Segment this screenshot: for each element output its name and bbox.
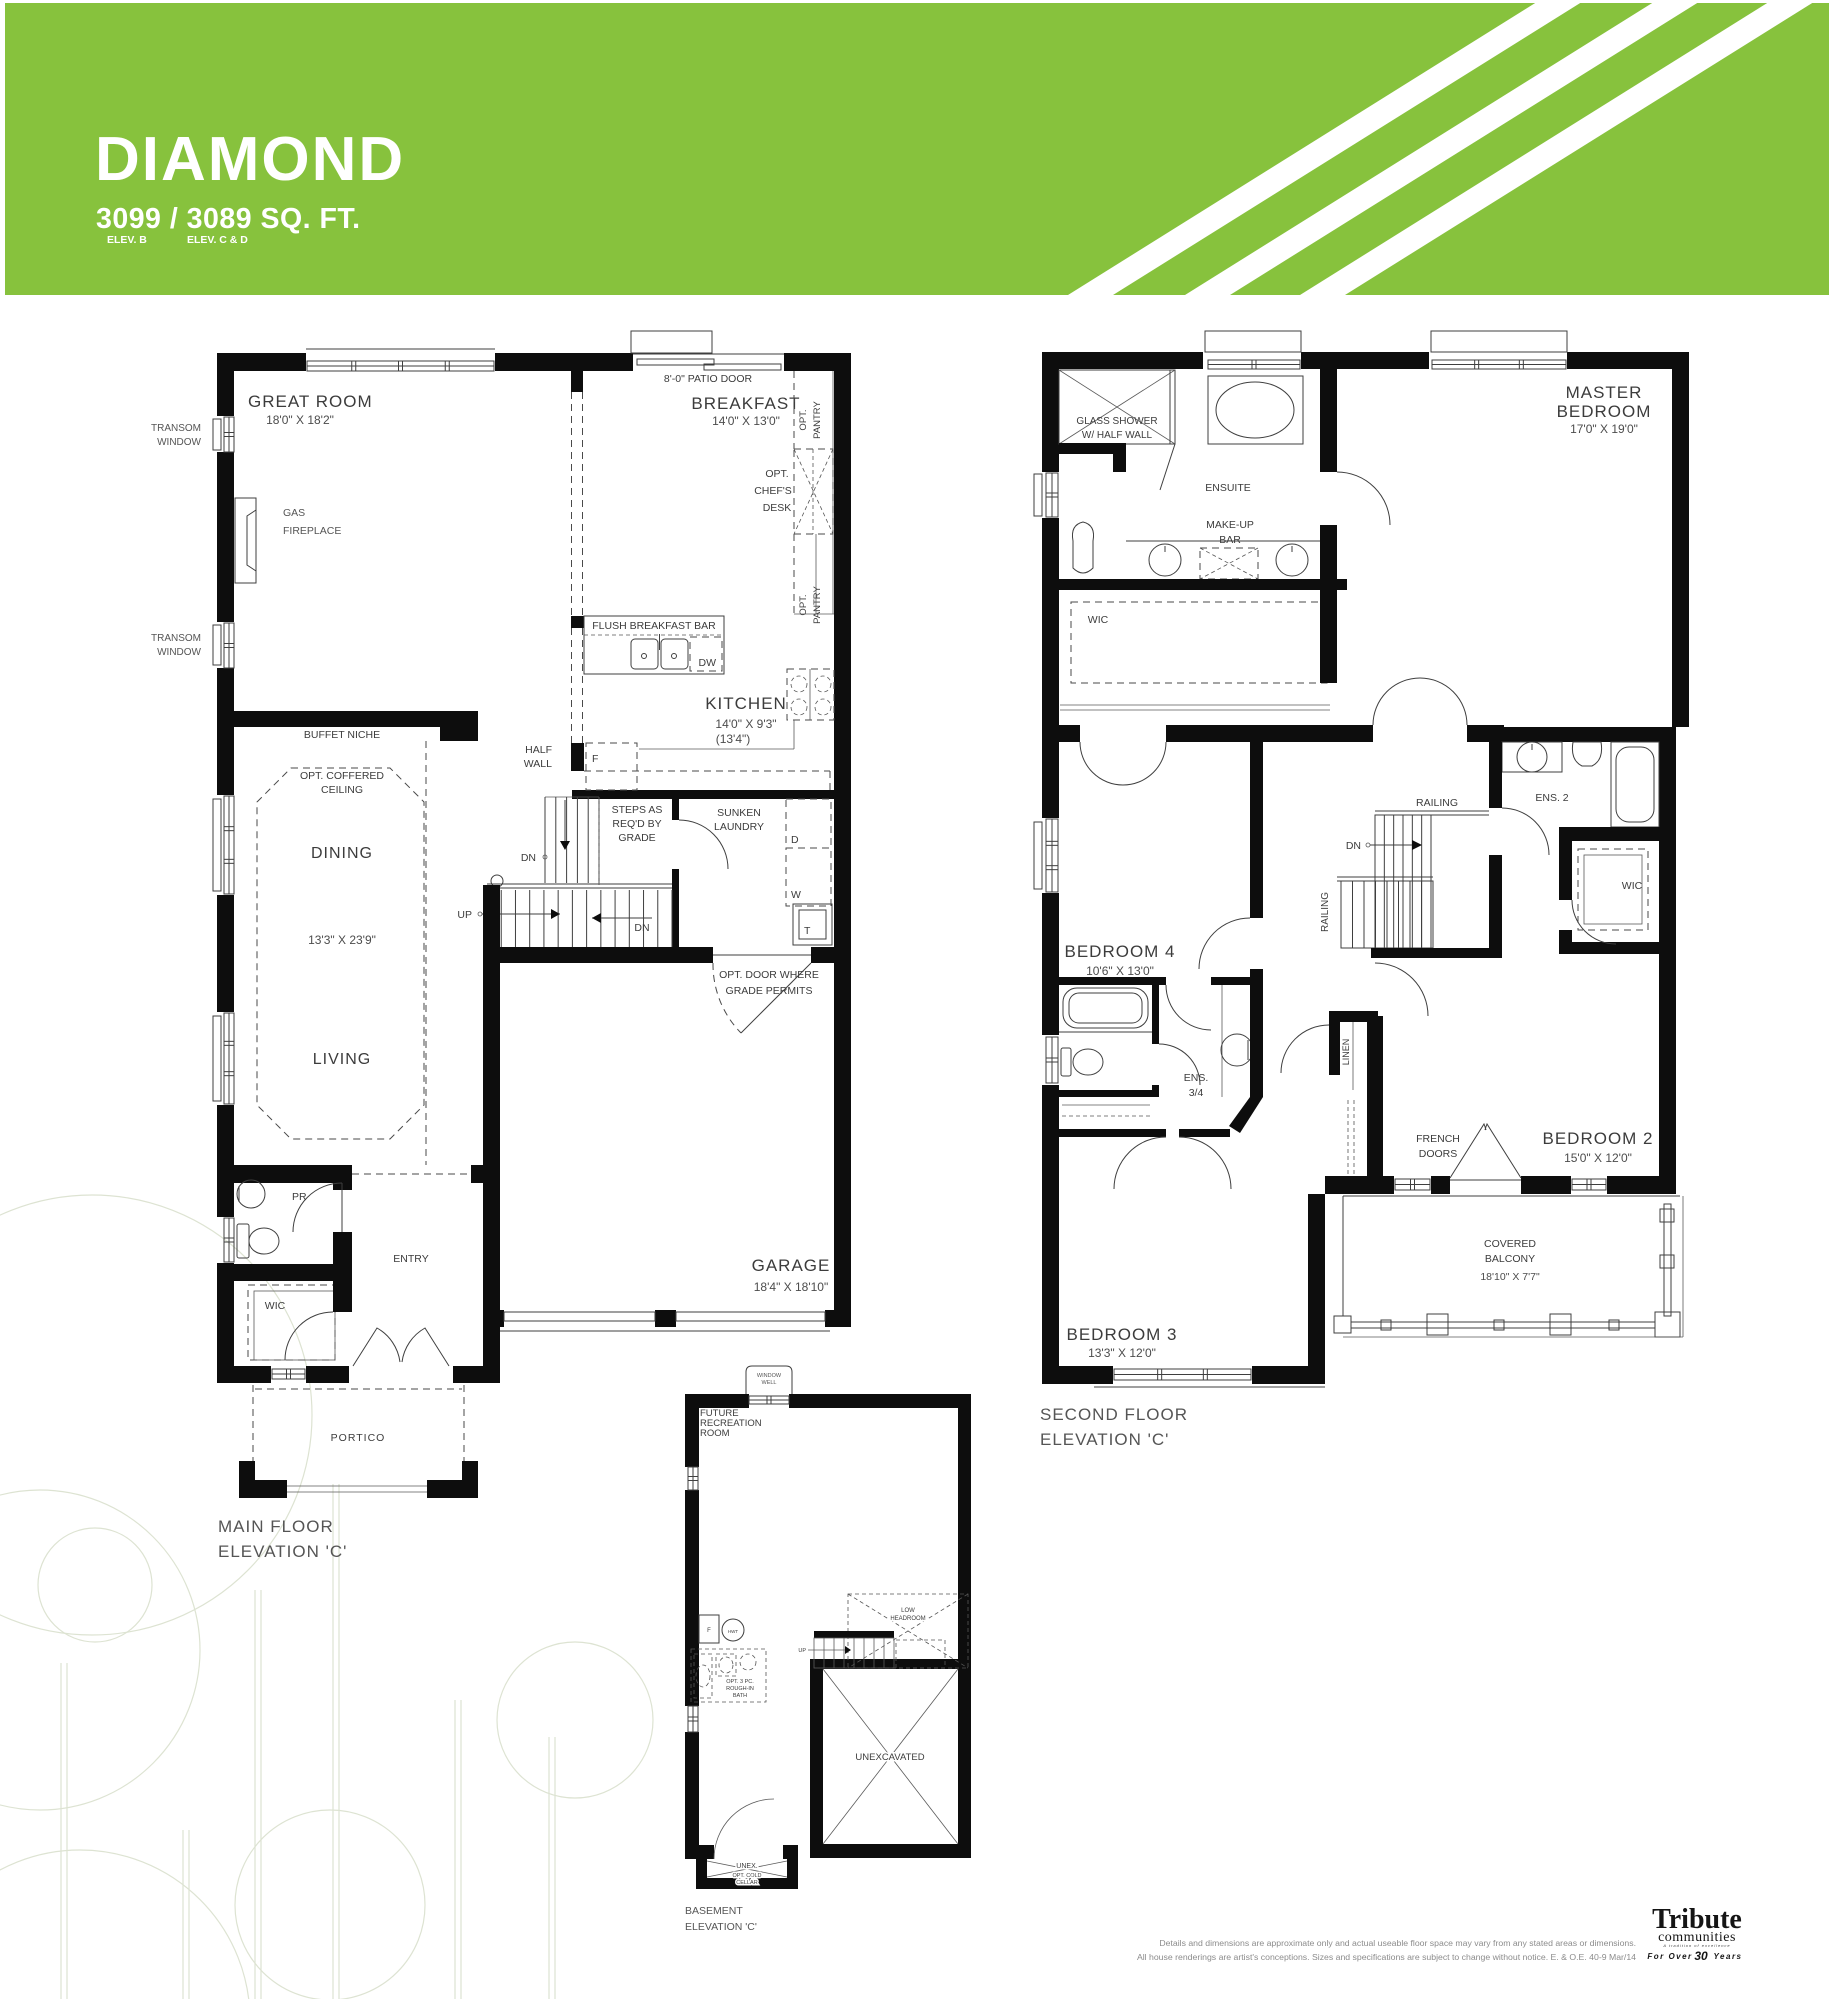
svg-text:HWT: HWT <box>728 1629 738 1634</box>
svg-text:GARAGE: GARAGE <box>752 1256 831 1275</box>
svg-text:GLASS SHOWER: GLASS SHOWER <box>1076 416 1157 427</box>
svg-text:BREAKFAST: BREAKFAST <box>691 394 800 413</box>
svg-text:ELEV. B: ELEV. B <box>107 234 147 246</box>
svg-text:WIC: WIC <box>265 1300 286 1312</box>
svg-text:3/4: 3/4 <box>1189 1087 1204 1099</box>
svg-text:WINDOW: WINDOW <box>757 1373 782 1379</box>
svg-text:For Over: For Over <box>1647 1952 1692 1961</box>
svg-text:3099 / 3089 SQ. FT.: 3099 / 3089 SQ. FT. <box>96 203 361 235</box>
svg-text:D: D <box>791 834 799 846</box>
svg-text:18'0" X 18'2": 18'0" X 18'2" <box>266 413 334 427</box>
svg-text:MASTER: MASTER <box>1566 383 1643 402</box>
svg-text:DN: DN <box>521 852 536 864</box>
svg-text:18'4" X 18'10": 18'4" X 18'10" <box>754 1280 829 1294</box>
svg-text:WIC: WIC <box>1622 880 1643 892</box>
svg-text:SUNKEN: SUNKEN <box>717 807 761 819</box>
svg-text:PR: PR <box>292 1191 307 1203</box>
svg-text:WIC: WIC <box>1088 614 1109 626</box>
svg-text:CEILING: CEILING <box>321 784 363 796</box>
svg-text:CHEF'S: CHEF'S <box>754 485 792 497</box>
svg-text:ENS.: ENS. <box>1184 1072 1209 1084</box>
svg-text:Years: Years <box>1714 1952 1743 1961</box>
svg-text:OPT.: OPT. <box>798 594 809 615</box>
svg-text:FLUSH BREAKFAST BAR: FLUSH BREAKFAST BAR <box>592 620 716 632</box>
svg-text:LIVING: LIVING <box>313 1051 371 1068</box>
svg-text:DIAMOND: DIAMOND <box>95 125 405 194</box>
svg-text:FRENCH: FRENCH <box>1416 1133 1460 1145</box>
svg-text:UP: UP <box>798 1648 806 1654</box>
svg-text:18'10" X 7'7": 18'10" X 7'7" <box>1480 1271 1540 1283</box>
svg-text:OPT. DOOR WHERE: OPT. DOOR WHERE <box>719 969 819 981</box>
svg-text:BATH: BATH <box>733 1693 747 1699</box>
svg-text:ENSUITE: ENSUITE <box>1205 482 1251 494</box>
svg-text:DINING: DINING <box>311 845 373 862</box>
svg-text:DN: DN <box>634 922 649 934</box>
svg-text:14'0" X 9'3": 14'0" X 9'3" <box>715 717 776 731</box>
svg-text:LOW: LOW <box>901 1608 915 1614</box>
svg-text:LINEN: LINEN <box>1341 1039 1351 1066</box>
svg-text:T: T <box>804 925 811 937</box>
svg-text:CELLAR: CELLAR <box>736 1880 757 1886</box>
svg-text:F: F <box>592 753 598 765</box>
svg-text:OPT.: OPT. <box>765 468 788 480</box>
svg-text:All house renderings are artis: All house renderings are artist's concep… <box>1137 1952 1636 1962</box>
svg-text:ELEV. C & D: ELEV. C & D <box>187 234 248 246</box>
svg-text:DESK: DESK <box>763 502 792 514</box>
svg-text:PANTRY: PANTRY <box>812 586 823 624</box>
svg-text:UP: UP <box>457 909 472 921</box>
svg-text:DW: DW <box>699 657 717 669</box>
svg-text:BEDROOM 2: BEDROOM 2 <box>1542 1129 1653 1148</box>
svg-text:OPT. 3 PC.: OPT. 3 PC. <box>726 1679 754 1685</box>
svg-text:ELEVATION 'C': ELEVATION 'C' <box>218 1542 347 1561</box>
svg-text:GRADE: GRADE <box>618 832 655 844</box>
svg-text:ELEVATION 'C': ELEVATION 'C' <box>685 1921 757 1933</box>
svg-text:OPT. COLD: OPT. COLD <box>732 1873 761 1879</box>
svg-text:BAR: BAR <box>1219 534 1241 546</box>
svg-text:13'3" X 23'9": 13'3" X 23'9" <box>308 933 376 947</box>
svg-text:WINDOW: WINDOW <box>157 437 201 448</box>
svg-text:14'0" X 13'0": 14'0" X 13'0" <box>712 414 780 428</box>
svg-text:BASEMENT: BASEMENT <box>685 1905 743 1917</box>
svg-text:OPT.: OPT. <box>798 409 809 430</box>
svg-text:RAILING: RAILING <box>1320 892 1331 932</box>
svg-text:STEPS AS: STEPS AS <box>612 804 663 816</box>
svg-text:FIREPLACE: FIREPLACE <box>283 525 341 537</box>
svg-text:10'6" X 13'0": 10'6" X 13'0" <box>1086 964 1154 978</box>
svg-text:GAS: GAS <box>283 507 305 519</box>
svg-text:TRANSOM: TRANSOM <box>151 423 201 434</box>
svg-text:ROOM: ROOM <box>700 1428 730 1439</box>
svg-text:BEDROOM: BEDROOM <box>1557 402 1652 421</box>
svg-text:TRANSOM: TRANSOM <box>151 633 201 644</box>
svg-text:17'0" X 19'0": 17'0" X 19'0" <box>1570 422 1638 436</box>
svg-text:UNEXCAVATED: UNEXCAVATED <box>855 1752 924 1763</box>
svg-text:ROUGH-IN: ROUGH-IN <box>726 1686 754 1692</box>
svg-text:GREAT ROOM: GREAT ROOM <box>248 392 373 411</box>
svg-text:BEDROOM 4: BEDROOM 4 <box>1064 942 1175 961</box>
svg-text:DN: DN <box>1346 840 1361 852</box>
svg-text:13'3" X 12'0": 13'3" X 12'0" <box>1088 1346 1156 1360</box>
svg-text:W/ HALF WALL: W/ HALF WALL <box>1082 430 1153 441</box>
svg-text:WINDOW: WINDOW <box>157 647 201 658</box>
svg-text:HEADROOM: HEADROOM <box>890 1616 925 1622</box>
svg-text:SECOND FLOOR: SECOND FLOOR <box>1040 1405 1188 1424</box>
svg-text:BALCONY: BALCONY <box>1485 1253 1535 1265</box>
svg-text:A tradition of excellence: A tradition of excellence <box>1662 1943 1730 1948</box>
svg-text:WALL: WALL <box>524 758 552 770</box>
svg-text:ENTRY: ENTRY <box>393 1253 428 1265</box>
svg-text:8'-0" PATIO DOOR: 8'-0" PATIO DOOR <box>664 373 753 385</box>
svg-text:COVERED: COVERED <box>1484 1238 1536 1250</box>
svg-text:ELEVATION 'C': ELEVATION 'C' <box>1040 1430 1169 1449</box>
svg-text:DOORS: DOORS <box>1419 1148 1458 1160</box>
svg-text:MAIN FLOOR: MAIN FLOOR <box>218 1517 334 1536</box>
svg-text:HALF: HALF <box>525 744 552 756</box>
svg-text:WELL: WELL <box>762 1380 777 1386</box>
svg-text:PANTRY: PANTRY <box>812 401 823 439</box>
svg-text:BUFFET NICHE: BUFFET NICHE <box>304 729 380 741</box>
svg-text:W: W <box>791 889 801 901</box>
svg-text:F: F <box>707 1628 711 1634</box>
svg-text:UNEX.: UNEX. <box>736 1863 757 1870</box>
svg-text:OPT. COFFERED: OPT. COFFERED <box>300 770 384 782</box>
svg-text:30: 30 <box>1694 1949 1708 1963</box>
svg-text:(13'4"): (13'4") <box>716 732 751 746</box>
svg-text:Details and dimensions are app: Details and dimensions are approximate o… <box>1159 1938 1636 1948</box>
svg-text:RAILING: RAILING <box>1416 797 1458 809</box>
svg-text:15'0" X 12'0": 15'0" X 12'0" <box>1564 1151 1632 1165</box>
svg-text:LAUNDRY: LAUNDRY <box>714 821 764 833</box>
svg-text:BEDROOM 3: BEDROOM 3 <box>1066 1325 1177 1344</box>
svg-text:REQ'D BY: REQ'D BY <box>612 818 661 830</box>
svg-text:PORTICO: PORTICO <box>331 1432 386 1444</box>
svg-text:ENS. 2: ENS. 2 <box>1535 792 1568 804</box>
svg-text:GRADE PERMITS: GRADE PERMITS <box>726 985 813 997</box>
svg-text:KITCHEN: KITCHEN <box>705 694 787 713</box>
svg-text:MAKE-UP: MAKE-UP <box>1206 519 1254 531</box>
